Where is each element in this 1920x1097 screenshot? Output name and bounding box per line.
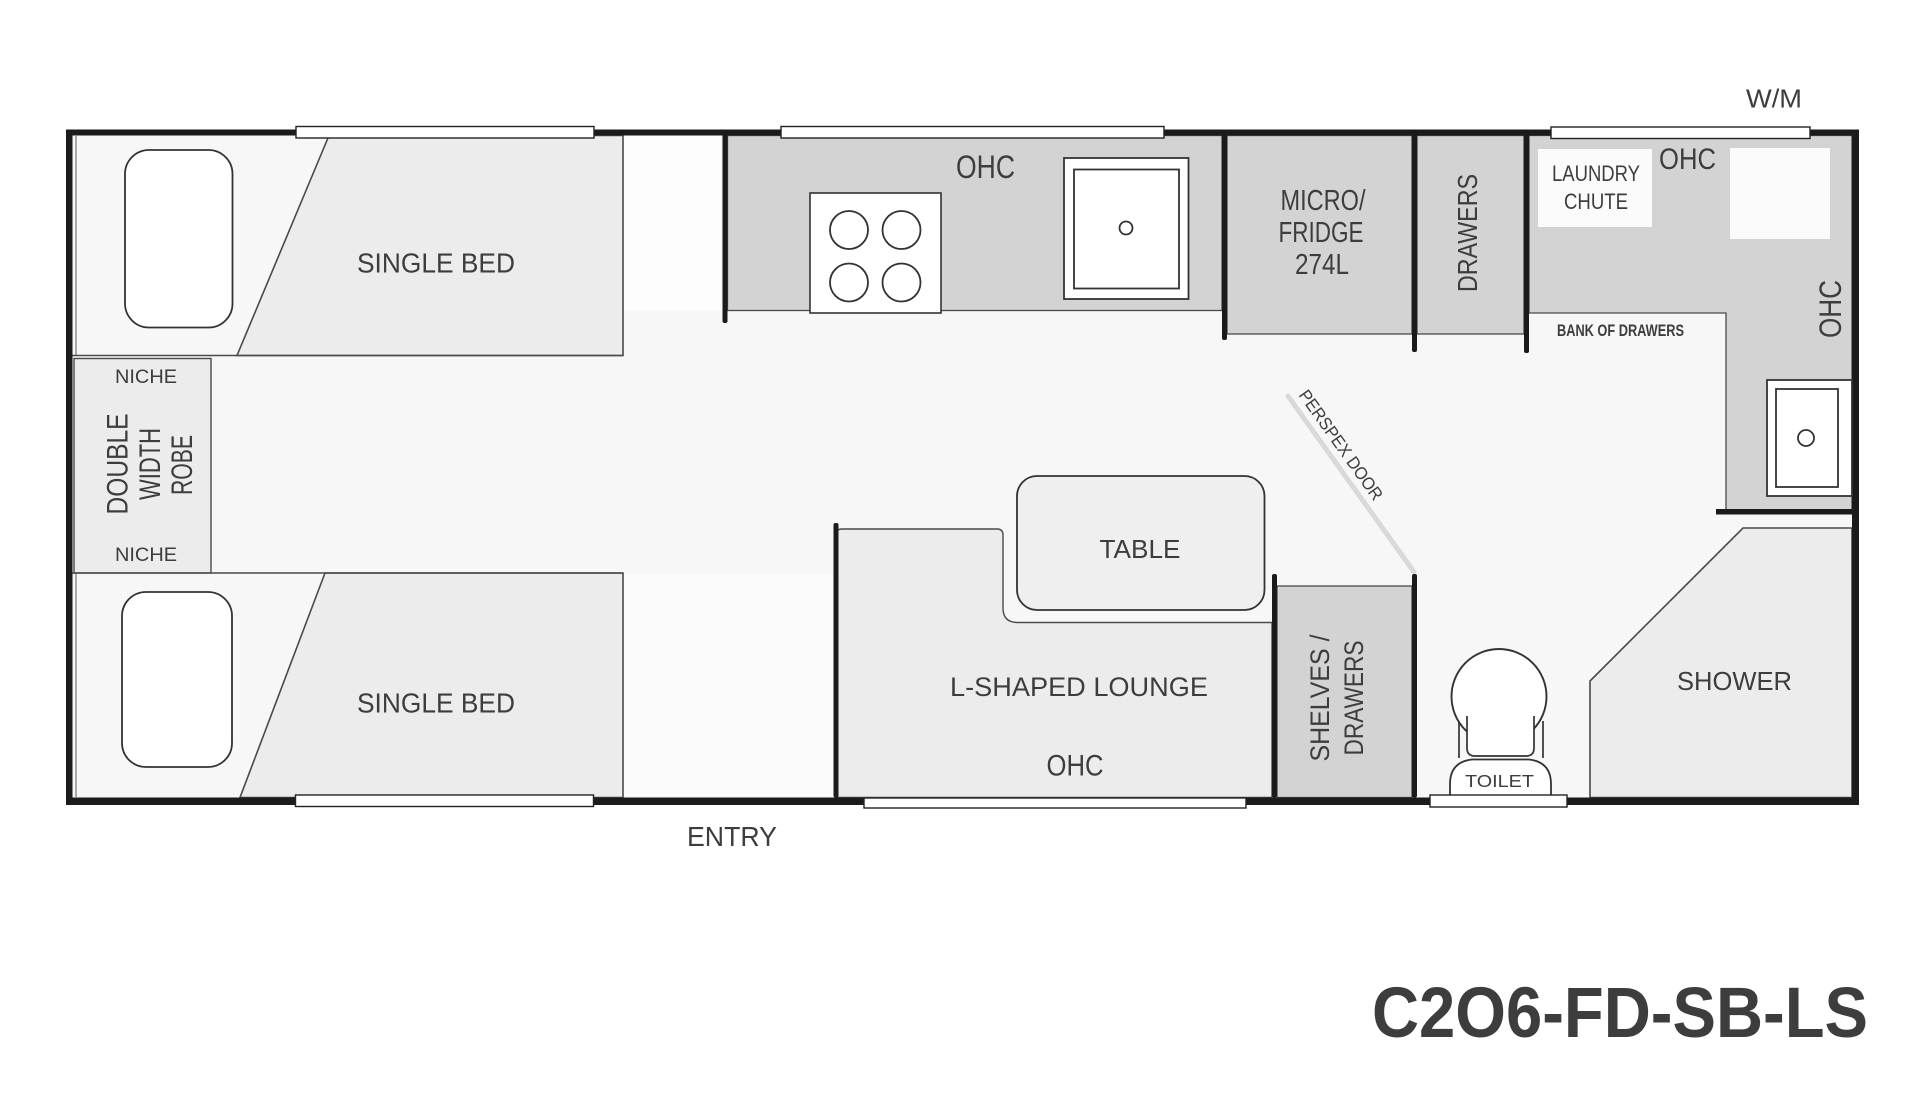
svg-text:TABLE: TABLE [1100, 534, 1181, 564]
svg-text:OHC: OHC [956, 149, 1015, 185]
svg-text:LAUNDRY: LAUNDRY [1552, 161, 1640, 186]
svg-text:NICHE: NICHE [115, 544, 177, 566]
svg-text:MICRO/: MICRO/ [1281, 185, 1367, 217]
svg-text:W/M: W/M [1746, 84, 1802, 114]
svg-text:L-SHAPED LOUNGE: L-SHAPED LOUNGE [950, 672, 1208, 702]
svg-text:ROBE: ROBE [166, 435, 199, 495]
svg-text:SHOWER: SHOWER [1677, 666, 1792, 696]
svg-text:OHC: OHC [1047, 750, 1104, 783]
svg-text:274L: 274L [1295, 249, 1349, 281]
svg-text:SINGLE BED: SINGLE BED [357, 688, 515, 719]
svg-text:FRIDGE: FRIDGE [1279, 217, 1364, 249]
svg-text:TOILET: TOILET [1465, 771, 1534, 791]
svg-text:SHELVES /: SHELVES / [1305, 634, 1335, 761]
svg-text:DRAWERS: DRAWERS [1452, 174, 1483, 292]
svg-text:ENTRY: ENTRY [687, 821, 777, 852]
svg-text:DRAWERS: DRAWERS [1339, 641, 1369, 756]
svg-text:OHC: OHC [1812, 280, 1848, 338]
svg-text:DOUBLE: DOUBLE [102, 414, 135, 515]
svg-text:CHUTE: CHUTE [1564, 189, 1628, 214]
svg-text:WIDTH: WIDTH [134, 428, 167, 500]
svg-text:SINGLE BED: SINGLE BED [357, 248, 515, 279]
svg-text:OHC: OHC [1659, 143, 1716, 176]
svg-text:BANK OF DRAWERS: BANK OF DRAWERS [1557, 322, 1684, 340]
svg-text:NICHE: NICHE [115, 366, 177, 388]
svg-text:C2O6-FD-SB-LS: C2O6-FD-SB-LS [1372, 973, 1868, 1053]
